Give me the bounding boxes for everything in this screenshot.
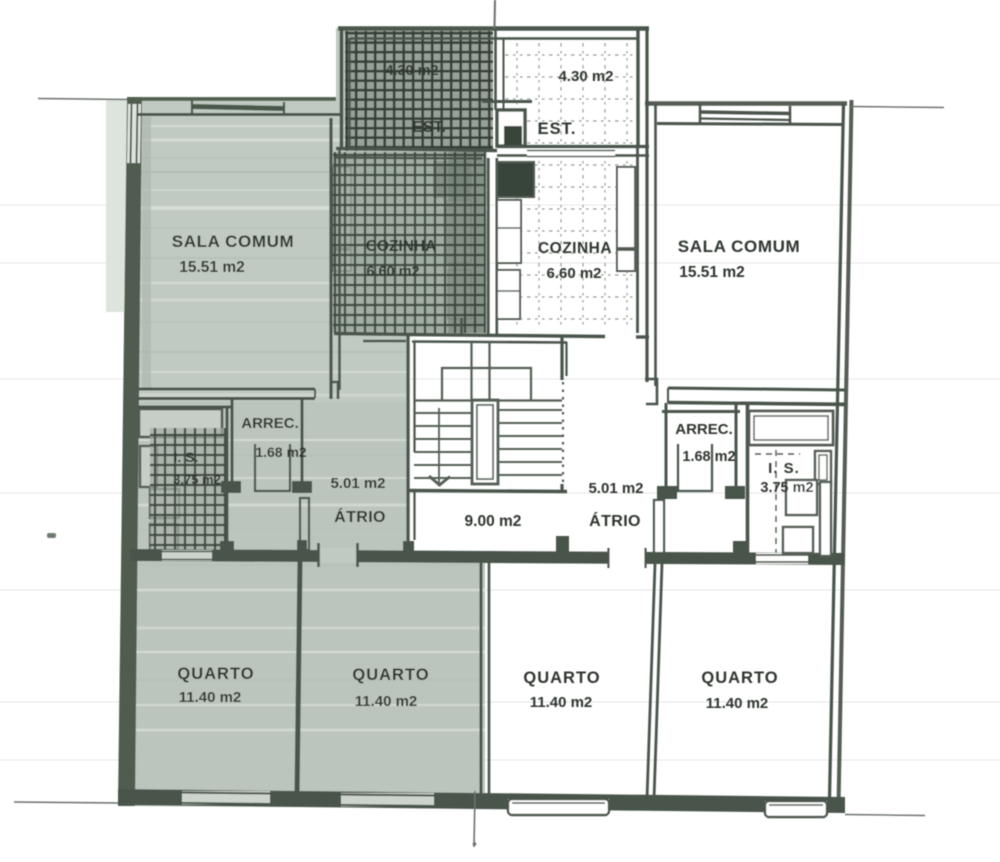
svg-text:1.68 m2: 1.68 m2	[255, 444, 307, 460]
svg-text:6.60 m2: 6.60 m2	[546, 265, 601, 282]
svg-text:4.30 m2: 4.30 m2	[385, 63, 438, 79]
svg-text:11.40 m2: 11.40 m2	[179, 689, 242, 706]
svg-text:ÁTRIO: ÁTRIO	[589, 511, 641, 530]
svg-text:SALA COMUM: SALA COMUM	[172, 232, 294, 251]
svg-text:COZINHA: COZINHA	[538, 240, 612, 257]
svg-text:ARREC.: ARREC.	[241, 415, 299, 432]
svg-text:ARREC.: ARREC.	[675, 421, 733, 438]
svg-text:I. S.: I. S.	[768, 460, 800, 477]
svg-text:ÁTRIO: ÁTRIO	[334, 507, 386, 526]
svg-text:I. S.: I. S.	[174, 449, 199, 465]
svg-text:11.40 m2: 11.40 m2	[530, 694, 593, 711]
svg-text:5.01 m2: 5.01 m2	[588, 480, 643, 497]
svg-text:11.40 m2: 11.40 m2	[706, 695, 769, 712]
svg-text:9.00 m2: 9.00 m2	[465, 513, 522, 530]
svg-text:3.75 m2: 3.75 m2	[760, 480, 813, 496]
svg-text:6.60 m2: 6.60 m2	[366, 264, 419, 280]
svg-text:QUARTO: QUARTO	[701, 669, 778, 687]
svg-text:QUARTO: QUARTO	[523, 669, 600, 687]
svg-text:5.01 m2: 5.01 m2	[330, 475, 385, 492]
svg-text:SALA COMUM: SALA COMUM	[678, 237, 800, 256]
svg-text:QUARTO: QUARTO	[177, 665, 254, 683]
svg-text:1.68 m2: 1.68 m2	[682, 449, 735, 465]
svg-text:15.51 m2: 15.51 m2	[679, 264, 745, 281]
svg-text:QUARTO: QUARTO	[352, 666, 429, 684]
svg-text:3.75 m2: 3.75 m2	[173, 472, 221, 487]
svg-text:4.30 m2: 4.30 m2	[558, 68, 613, 85]
svg-text:COZINHA: COZINHA	[366, 238, 437, 255]
svg-text:EST.: EST.	[538, 120, 577, 138]
svg-text:15.51 m2: 15.51 m2	[179, 259, 245, 276]
svg-text:11.40 m2: 11.40 m2	[355, 693, 418, 710]
svg-text:EST.: EST.	[412, 119, 446, 136]
